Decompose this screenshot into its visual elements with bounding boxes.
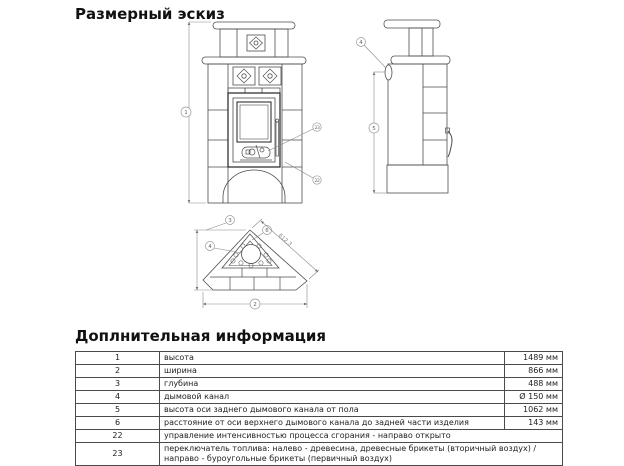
row-number: 23: [76, 443, 160, 466]
info-table: 1 высота 1489 мм 2 ширина 866 мм 3 глуби…: [75, 351, 563, 466]
base-arch: [223, 170, 285, 203]
row-number: 5: [76, 404, 160, 417]
table-row: 2 ширина 866 мм: [76, 365, 563, 378]
page: { "page": { "sketch_title": "Размерный э…: [0, 0, 624, 460]
row-value: 1489 мм: [505, 352, 563, 365]
row-description: высота: [160, 352, 505, 365]
svg-text:6: 6: [265, 228, 269, 234]
row-description: ширина: [160, 365, 505, 378]
row-number: 1: [76, 352, 160, 365]
table-row: 5 высота оси заднего дымового канала от …: [76, 404, 563, 417]
decorative-tile: [259, 67, 281, 85]
table-row: 6 расстояние от оси верхнего дымового ка…: [76, 417, 563, 430]
row-description: высота оси заднего дымового канала от по…: [160, 404, 505, 417]
front-mid-cornice: [202, 57, 306, 64]
info-section-title: Доплнительная информация: [75, 327, 326, 345]
front-top-cornice: [213, 22, 295, 29]
row-number: 6: [76, 417, 160, 430]
table-row: 3 глубина 488 мм: [76, 378, 563, 391]
diagonal-dimension-label: 612,3: [277, 233, 293, 248]
svg-text:2: 2: [253, 302, 257, 308]
vent-grille: [228, 88, 280, 93]
top-view: [203, 230, 307, 290]
row-number: 3: [76, 378, 160, 391]
row-value: Ø 150 мм: [505, 391, 563, 404]
row-value: 1062 мм: [505, 404, 563, 417]
table-row: 23 переключатель топлива: налево - древе…: [76, 443, 563, 466]
decorative-tile: [233, 67, 255, 85]
height-dimension-label: 1: [184, 110, 188, 116]
row-value: 866 мм: [505, 365, 563, 378]
side-view: [384, 20, 452, 193]
svg-text:4: 4: [359, 40, 363, 46]
table-row: 22 управление интенсивностью процесса сг…: [76, 430, 563, 443]
row-description: переключатель топлива: налево - древесин…: [160, 443, 563, 466]
table-row: 4 дымовой канал Ø 150 мм: [76, 391, 563, 404]
row-description: управление интенсивностью процесса сгора…: [160, 430, 563, 443]
row-description: дымовой канал: [160, 391, 505, 404]
firebox-door: [228, 93, 280, 167]
control-mechanism: [240, 145, 272, 160]
svg-text:4: 4: [208, 244, 212, 250]
svg-text:22: 22: [315, 178, 320, 184]
side-dimensions: 4 5: [357, 38, 388, 194]
front-view: [202, 22, 306, 203]
decorative-tile: [247, 35, 265, 51]
svg-text:5: 5: [372, 126, 376, 132]
row-value: 143 мм: [505, 417, 563, 430]
door-handle-rod: [276, 119, 279, 156]
row-number: 4: [76, 391, 160, 404]
front-dimensions: 1 23 22: [181, 22, 321, 203]
svg-text:3: 3: [228, 218, 232, 224]
row-description: расстояние от оси верхнего дымового кана…: [160, 417, 505, 430]
row-description: глубина: [160, 378, 505, 391]
info-table-body: 1 высота 1489 мм 2 ширина 866 мм 3 глуби…: [76, 352, 563, 466]
brick-courses: [210, 268, 296, 290]
rear-smoke-channel: [385, 65, 392, 80]
row-value: 488 мм: [505, 378, 563, 391]
svg-text:23: 23: [315, 125, 320, 131]
side-handle: [446, 128, 453, 157]
dimensional-drawing: 1 23 22 4 5: [0, 0, 624, 338]
row-number: 2: [76, 365, 160, 378]
table-row: 1 высота 1489 мм: [76, 352, 563, 365]
row-number: 22: [76, 430, 160, 443]
top-dimensions: 2 3 6 4 612,3: [194, 216, 319, 310]
